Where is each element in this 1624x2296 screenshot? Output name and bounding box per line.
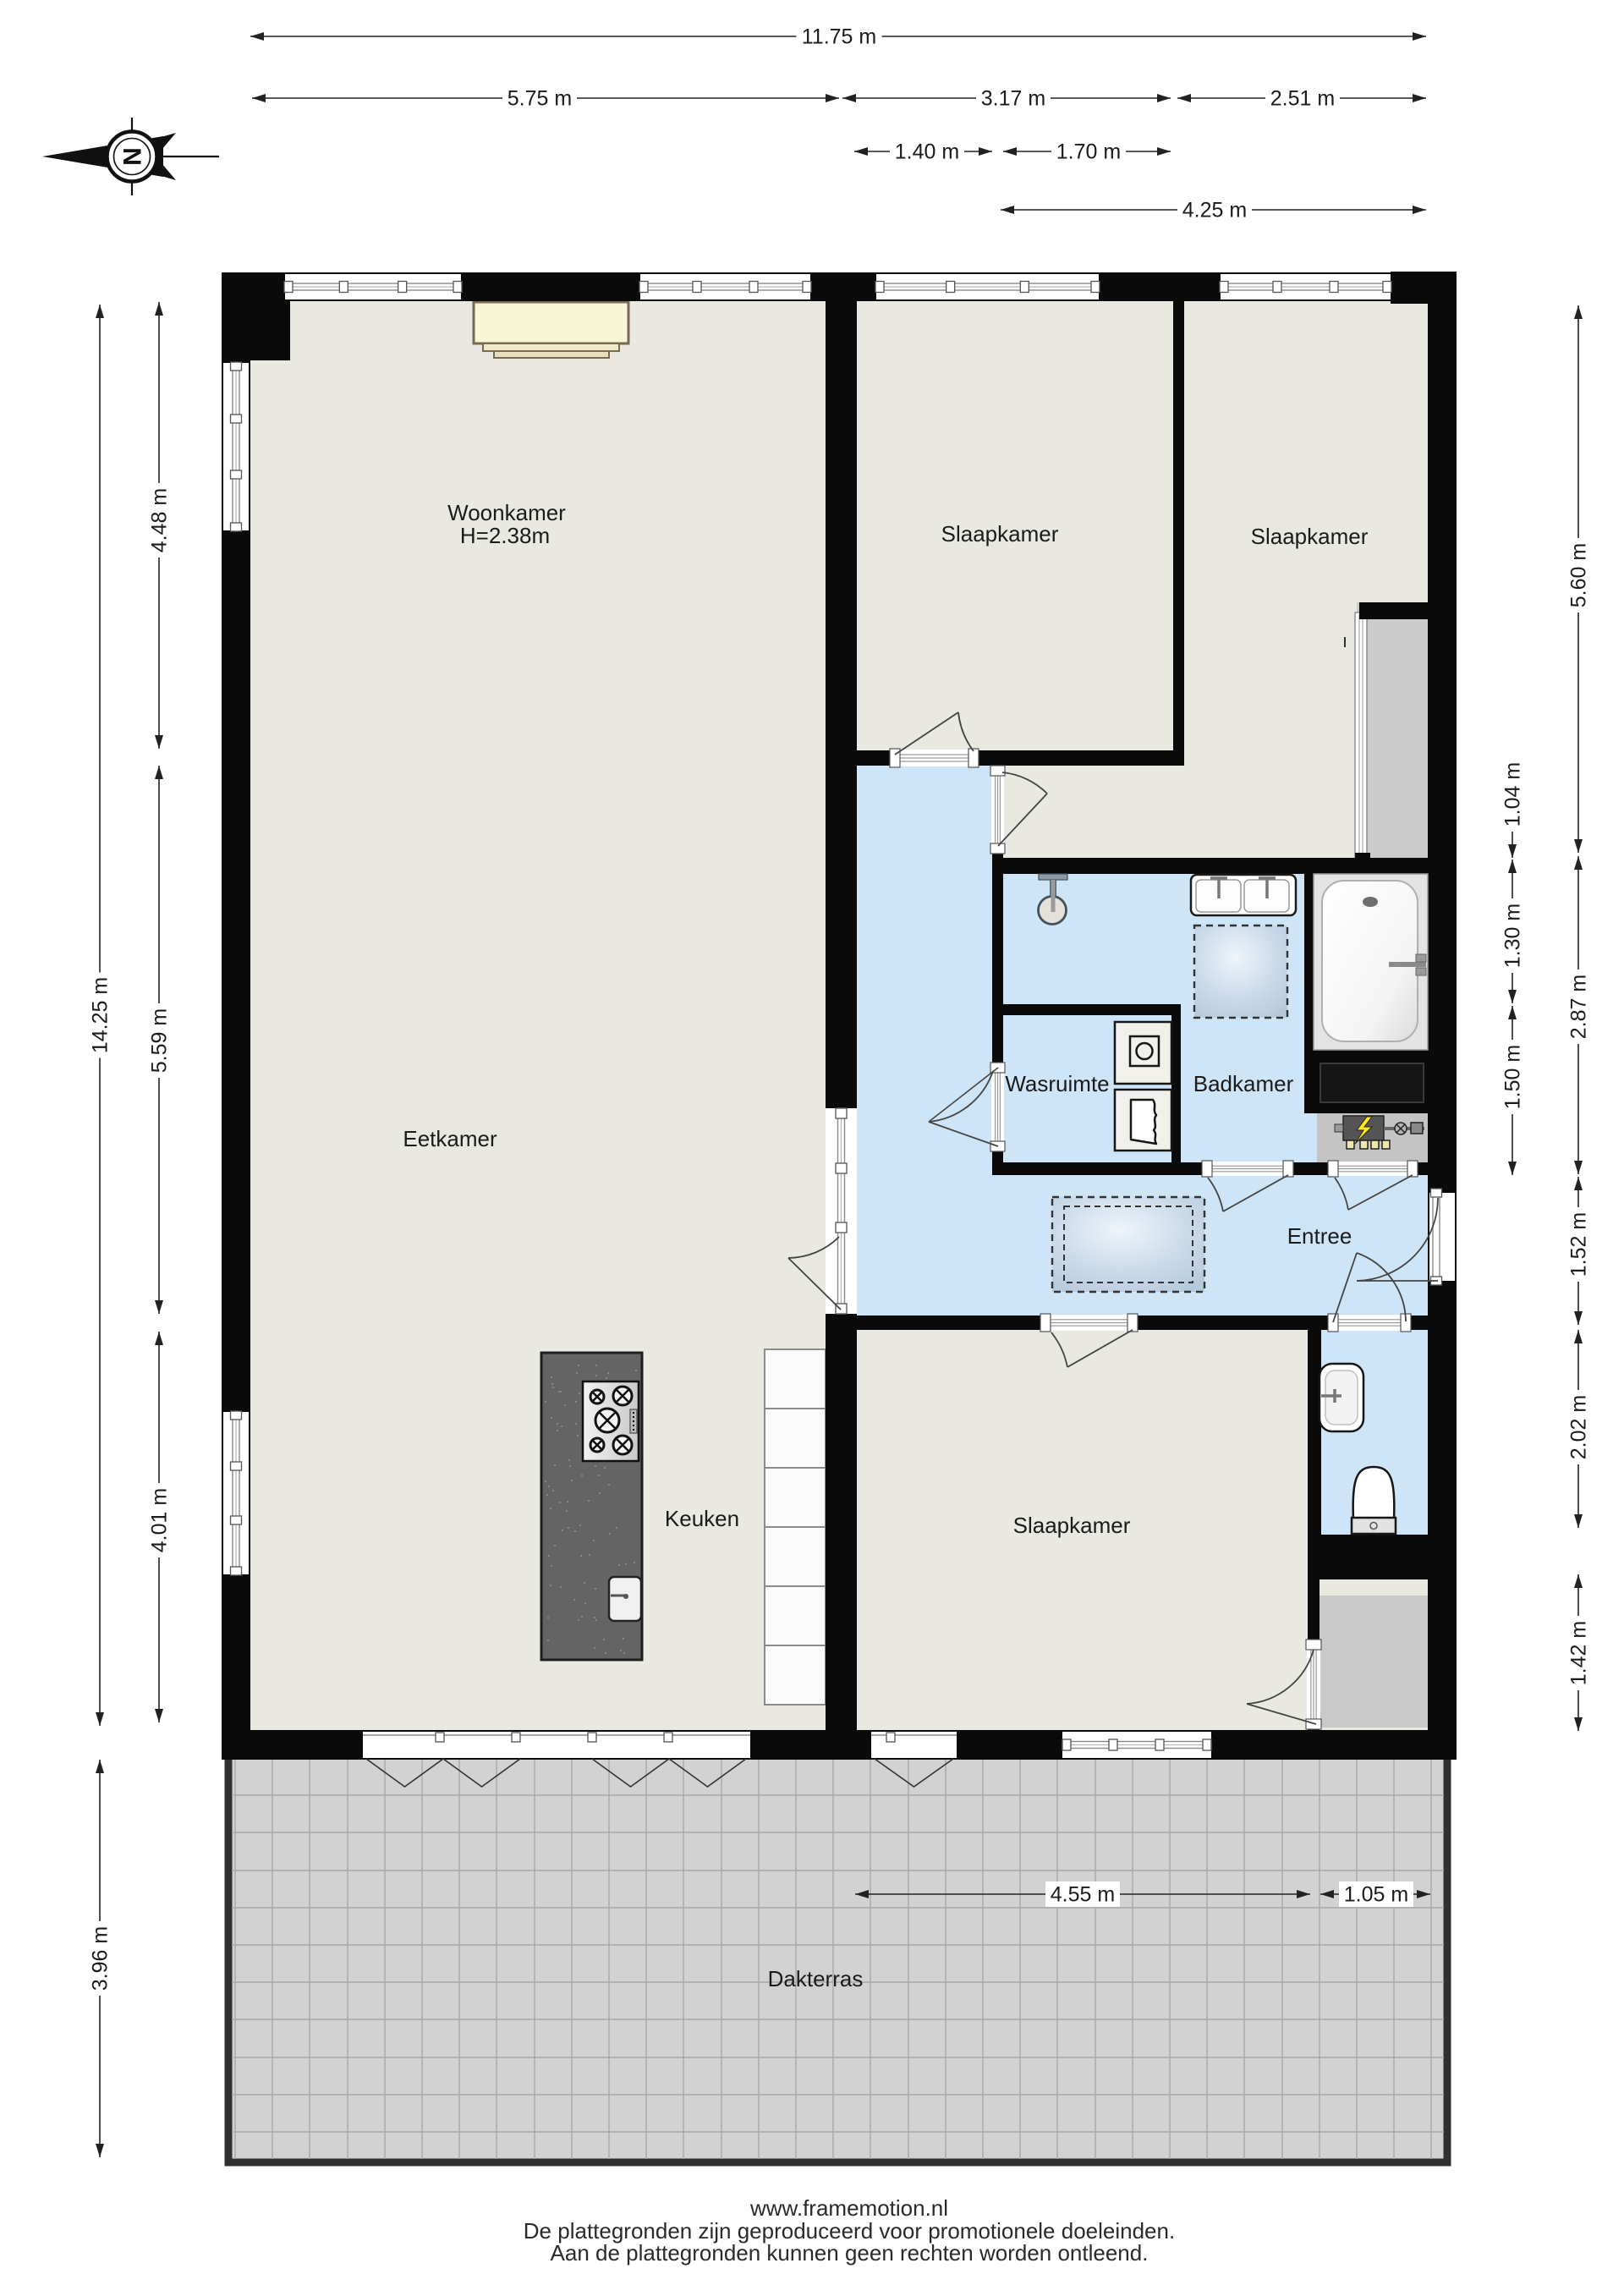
svg-text:Woonkamer: Woonkamer <box>447 500 566 525</box>
svg-text:3.17 m: 3.17 m <box>981 87 1045 111</box>
svg-text:4.55 m: 4.55 m <box>1051 1883 1115 1907</box>
svg-text:3.96 m: 3.96 m <box>89 1926 112 1991</box>
svg-text:Dakterras: Dakterras <box>768 1966 864 1991</box>
svg-text:2.51 m: 2.51 m <box>1270 87 1335 111</box>
svg-text:Slaapkamer: Slaapkamer <box>1013 1513 1131 1538</box>
svg-text:N: N <box>119 147 147 166</box>
svg-text:14.25 m: 14.25 m <box>89 977 112 1053</box>
svg-text:5.75 m: 5.75 m <box>507 87 572 111</box>
svg-text:4.48 m: 4.48 m <box>148 488 172 552</box>
svg-text:Aan de plattegronden kunnen ge: Aan de plattegronden kunnen geen rechten… <box>551 2240 1149 2266</box>
svg-text:1.70 m: 1.70 m <box>1056 140 1121 164</box>
svg-text:H=2.38m: H=2.38m <box>460 523 550 548</box>
svg-text:Keuken: Keuken <box>665 1506 739 1531</box>
svg-text:Slaapkamer: Slaapkamer <box>1251 524 1369 549</box>
svg-text:1.30 m: 1.30 m <box>1501 904 1525 968</box>
svg-text:1.05 m: 1.05 m <box>1344 1883 1408 1907</box>
svg-text:Wasruimte: Wasruimte <box>1005 1071 1109 1096</box>
svg-text:5.60 m: 5.60 m <box>1567 543 1591 607</box>
svg-text:4.01 m: 4.01 m <box>148 1488 172 1552</box>
svg-text:www.framemotion.nl: www.framemotion.nl <box>749 2195 948 2221</box>
svg-text:Entree: Entree <box>1287 1223 1352 1249</box>
svg-text:4.25 m: 4.25 m <box>1182 199 1247 222</box>
svg-text:Slaapkamer: Slaapkamer <box>941 521 1059 547</box>
svg-text:1.40 m: 1.40 m <box>895 140 959 164</box>
svg-text:1.50 m: 1.50 m <box>1501 1045 1525 1109</box>
svg-text:Eetkamer: Eetkamer <box>403 1126 497 1151</box>
svg-text:2.02 m: 2.02 m <box>1567 1395 1591 1459</box>
svg-text:1.04 m: 1.04 m <box>1501 762 1525 827</box>
svg-text:Badkamer: Badkamer <box>1193 1071 1294 1096</box>
svg-text:2.87 m: 2.87 m <box>1567 975 1591 1039</box>
svg-text:11.75 m: 11.75 m <box>802 25 876 49</box>
svg-text:1.52 m: 1.52 m <box>1567 1212 1591 1277</box>
svg-text:5.59 m: 5.59 m <box>148 1008 172 1073</box>
svg-text:1.42 m: 1.42 m <box>1567 1621 1591 1685</box>
